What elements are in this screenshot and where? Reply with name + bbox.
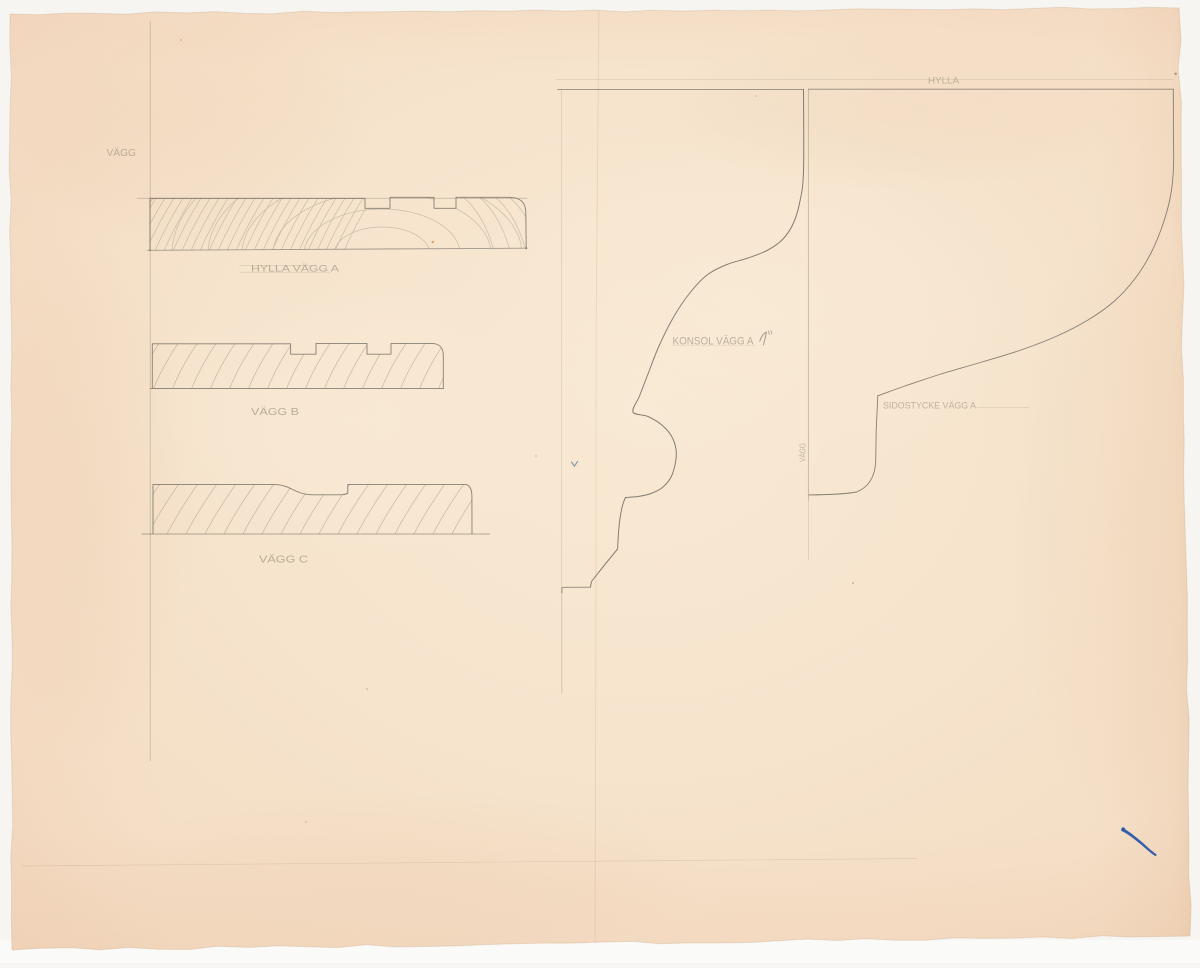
svg-text:SIDOSTYCKE VÄGG A: SIDOSTYCKE VÄGG A: [883, 401, 977, 412]
svg-text:VÄGG B: VÄGG B: [251, 406, 299, 418]
svg-text:VÄGG: VÄGG: [107, 147, 137, 159]
svg-text:VÄGG: VÄGG: [799, 443, 808, 462]
svg-text:HYLLA VÄGG A: HYLLA VÄGG A: [251, 264, 340, 275]
svg-text:HYLLA: HYLLA: [928, 76, 959, 86]
svg-text:VÄGG C: VÄGG C: [259, 554, 309, 566]
